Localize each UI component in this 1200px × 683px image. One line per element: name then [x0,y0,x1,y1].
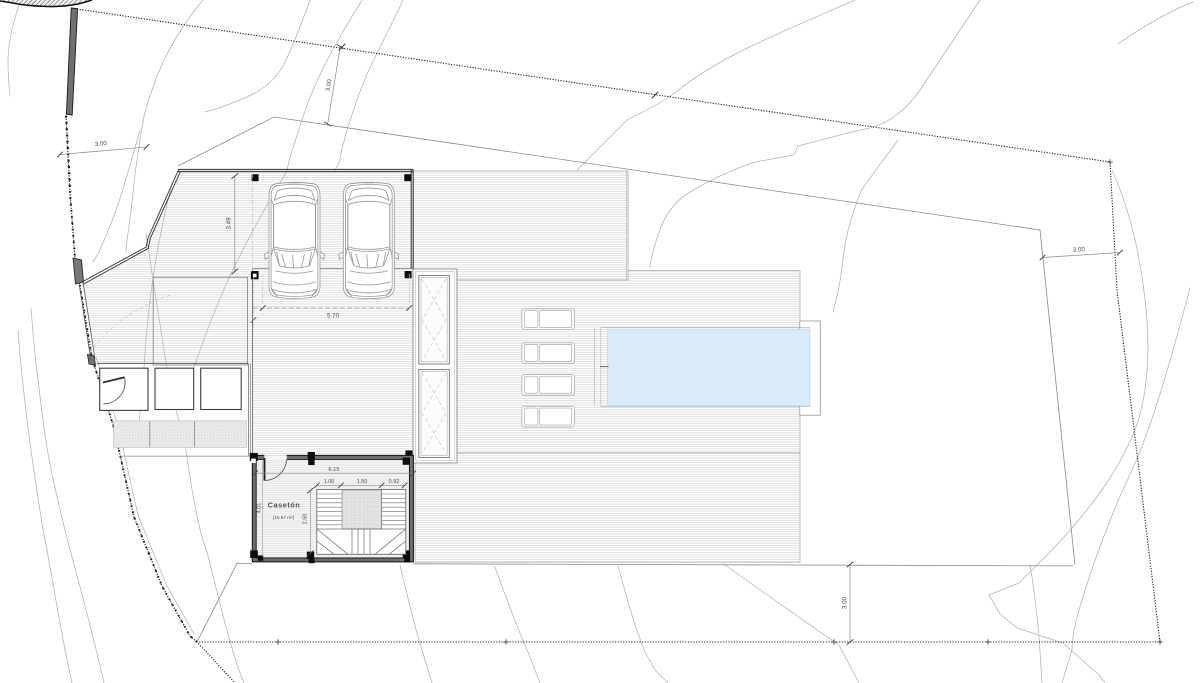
svg-text:3.00: 3.00 [95,140,108,148]
svg-text:3.49: 3.49 [226,217,233,230]
svg-text:5.70: 5.70 [327,313,340,320]
svg-text:Casetón: Casetón [268,501,301,510]
svg-text:0.92: 0.92 [389,479,400,485]
svg-text:1.00: 1.00 [324,479,335,485]
svg-text:1.50: 1.50 [357,479,368,485]
svg-text:6.15: 6.15 [328,467,339,473]
svg-text:4.01: 4.01 [256,503,262,514]
svg-text:3.00: 3.00 [1073,246,1086,254]
svg-text:3.00: 3.00 [842,596,849,609]
svg-text:2.50: 2.50 [303,514,309,525]
svg-text:(15.57 m²): (15.57 m²) [273,515,295,520]
